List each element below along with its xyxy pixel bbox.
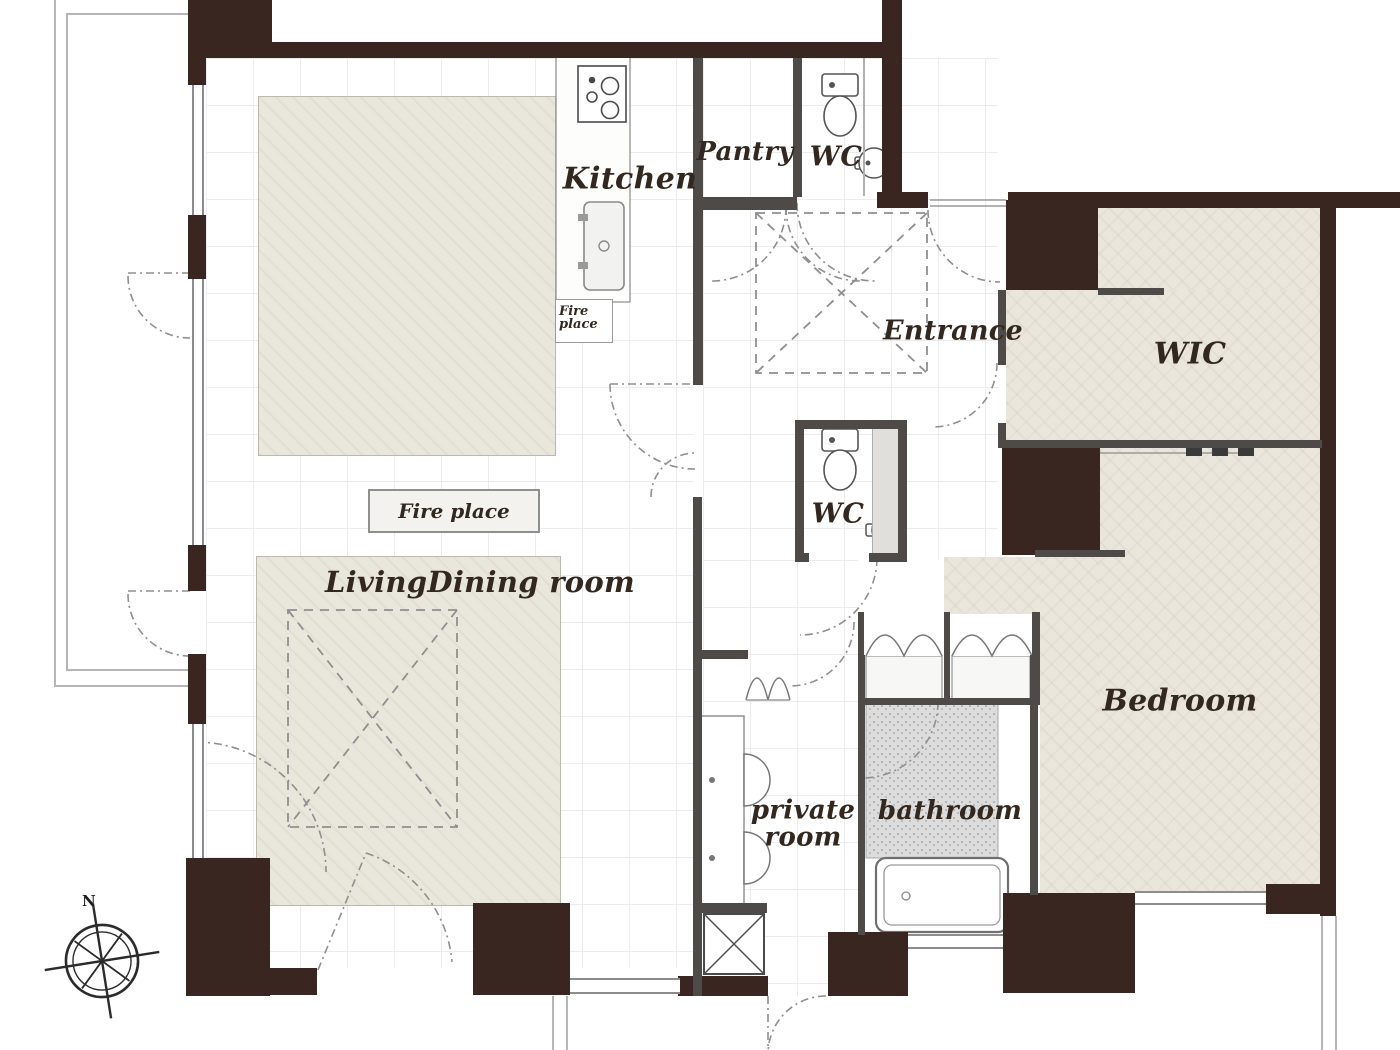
wall-segment <box>188 0 272 45</box>
room-label-wc-lower: WC <box>812 499 864 530</box>
fireplace-label: Fire place <box>398 499 509 523</box>
kitchen-sink-icon <box>578 202 624 290</box>
partition <box>693 497 702 996</box>
room-label-bedroom: Bedroom <box>1102 684 1257 719</box>
room-label-pantry: Pantry <box>696 137 793 167</box>
wall-segment <box>473 903 570 995</box>
partition <box>858 655 865 935</box>
wall-segment <box>1266 884 1324 914</box>
partition <box>793 58 802 197</box>
partition <box>695 197 797 210</box>
partition <box>698 650 748 659</box>
bathtub-icon <box>876 858 1008 932</box>
entrance-threshold <box>930 200 1006 206</box>
wall-segment <box>188 215 206 279</box>
partition <box>944 612 950 704</box>
partition <box>795 553 809 562</box>
washing-machine-icon <box>704 914 764 974</box>
fireplace-small-line2: place <box>559 318 612 331</box>
private-room-line2: room <box>751 825 855 852</box>
partition <box>693 58 703 385</box>
room-label-living-dining: LivingDining room <box>325 565 635 599</box>
partition <box>795 420 907 429</box>
fireplace-label-box: Fire place <box>368 489 540 533</box>
wall-segment <box>1320 192 1336 916</box>
partition <box>898 420 907 562</box>
partition <box>1035 550 1125 557</box>
service-duct <box>872 428 900 554</box>
window <box>192 279 204 545</box>
wall-segment <box>877 192 928 208</box>
wall-segment <box>188 545 206 591</box>
wall-segment <box>1002 443 1100 555</box>
wall-segment <box>188 654 206 724</box>
wall-segment <box>1006 200 1098 290</box>
wall-segment <box>828 932 908 996</box>
stove-icon <box>578 66 626 122</box>
toilet-icon <box>822 429 858 490</box>
room-label-wic: WIC <box>1154 337 1227 372</box>
partition <box>695 903 767 913</box>
wall-segment <box>1003 893 1135 993</box>
room-label-kitchen: Kitchen <box>563 162 697 197</box>
wall-segment <box>205 42 893 58</box>
window <box>192 85 204 215</box>
wall-segment <box>188 45 206 85</box>
compass-icon <box>36 895 169 1028</box>
room-label-bathroom: bathroom <box>878 796 1022 826</box>
compass-north-label: N <box>82 892 96 910</box>
bathroom-floor <box>866 700 998 858</box>
partition <box>1098 288 1164 295</box>
toilet-icon <box>822 74 858 136</box>
wall-segment <box>678 976 768 996</box>
floor-plan: Fire place Fire place Kitchen Pantry WC … <box>0 0 1400 1050</box>
partition <box>998 440 1322 448</box>
room-label-private-room: private room <box>751 798 855 853</box>
fireplace-small-label-box: Fire place <box>555 299 613 343</box>
private-room-line1: private <box>751 798 855 825</box>
wall-segment <box>882 0 902 196</box>
window <box>908 934 1003 949</box>
wall-segment <box>187 968 317 995</box>
window <box>192 724 204 858</box>
partition <box>795 420 804 562</box>
window <box>1135 891 1266 905</box>
window <box>570 978 680 994</box>
room-label-wc-upper: WC <box>810 142 862 173</box>
room-label-entrance: Entrance <box>883 316 1023 347</box>
partition <box>858 698 1040 705</box>
partition <box>1032 612 1040 704</box>
